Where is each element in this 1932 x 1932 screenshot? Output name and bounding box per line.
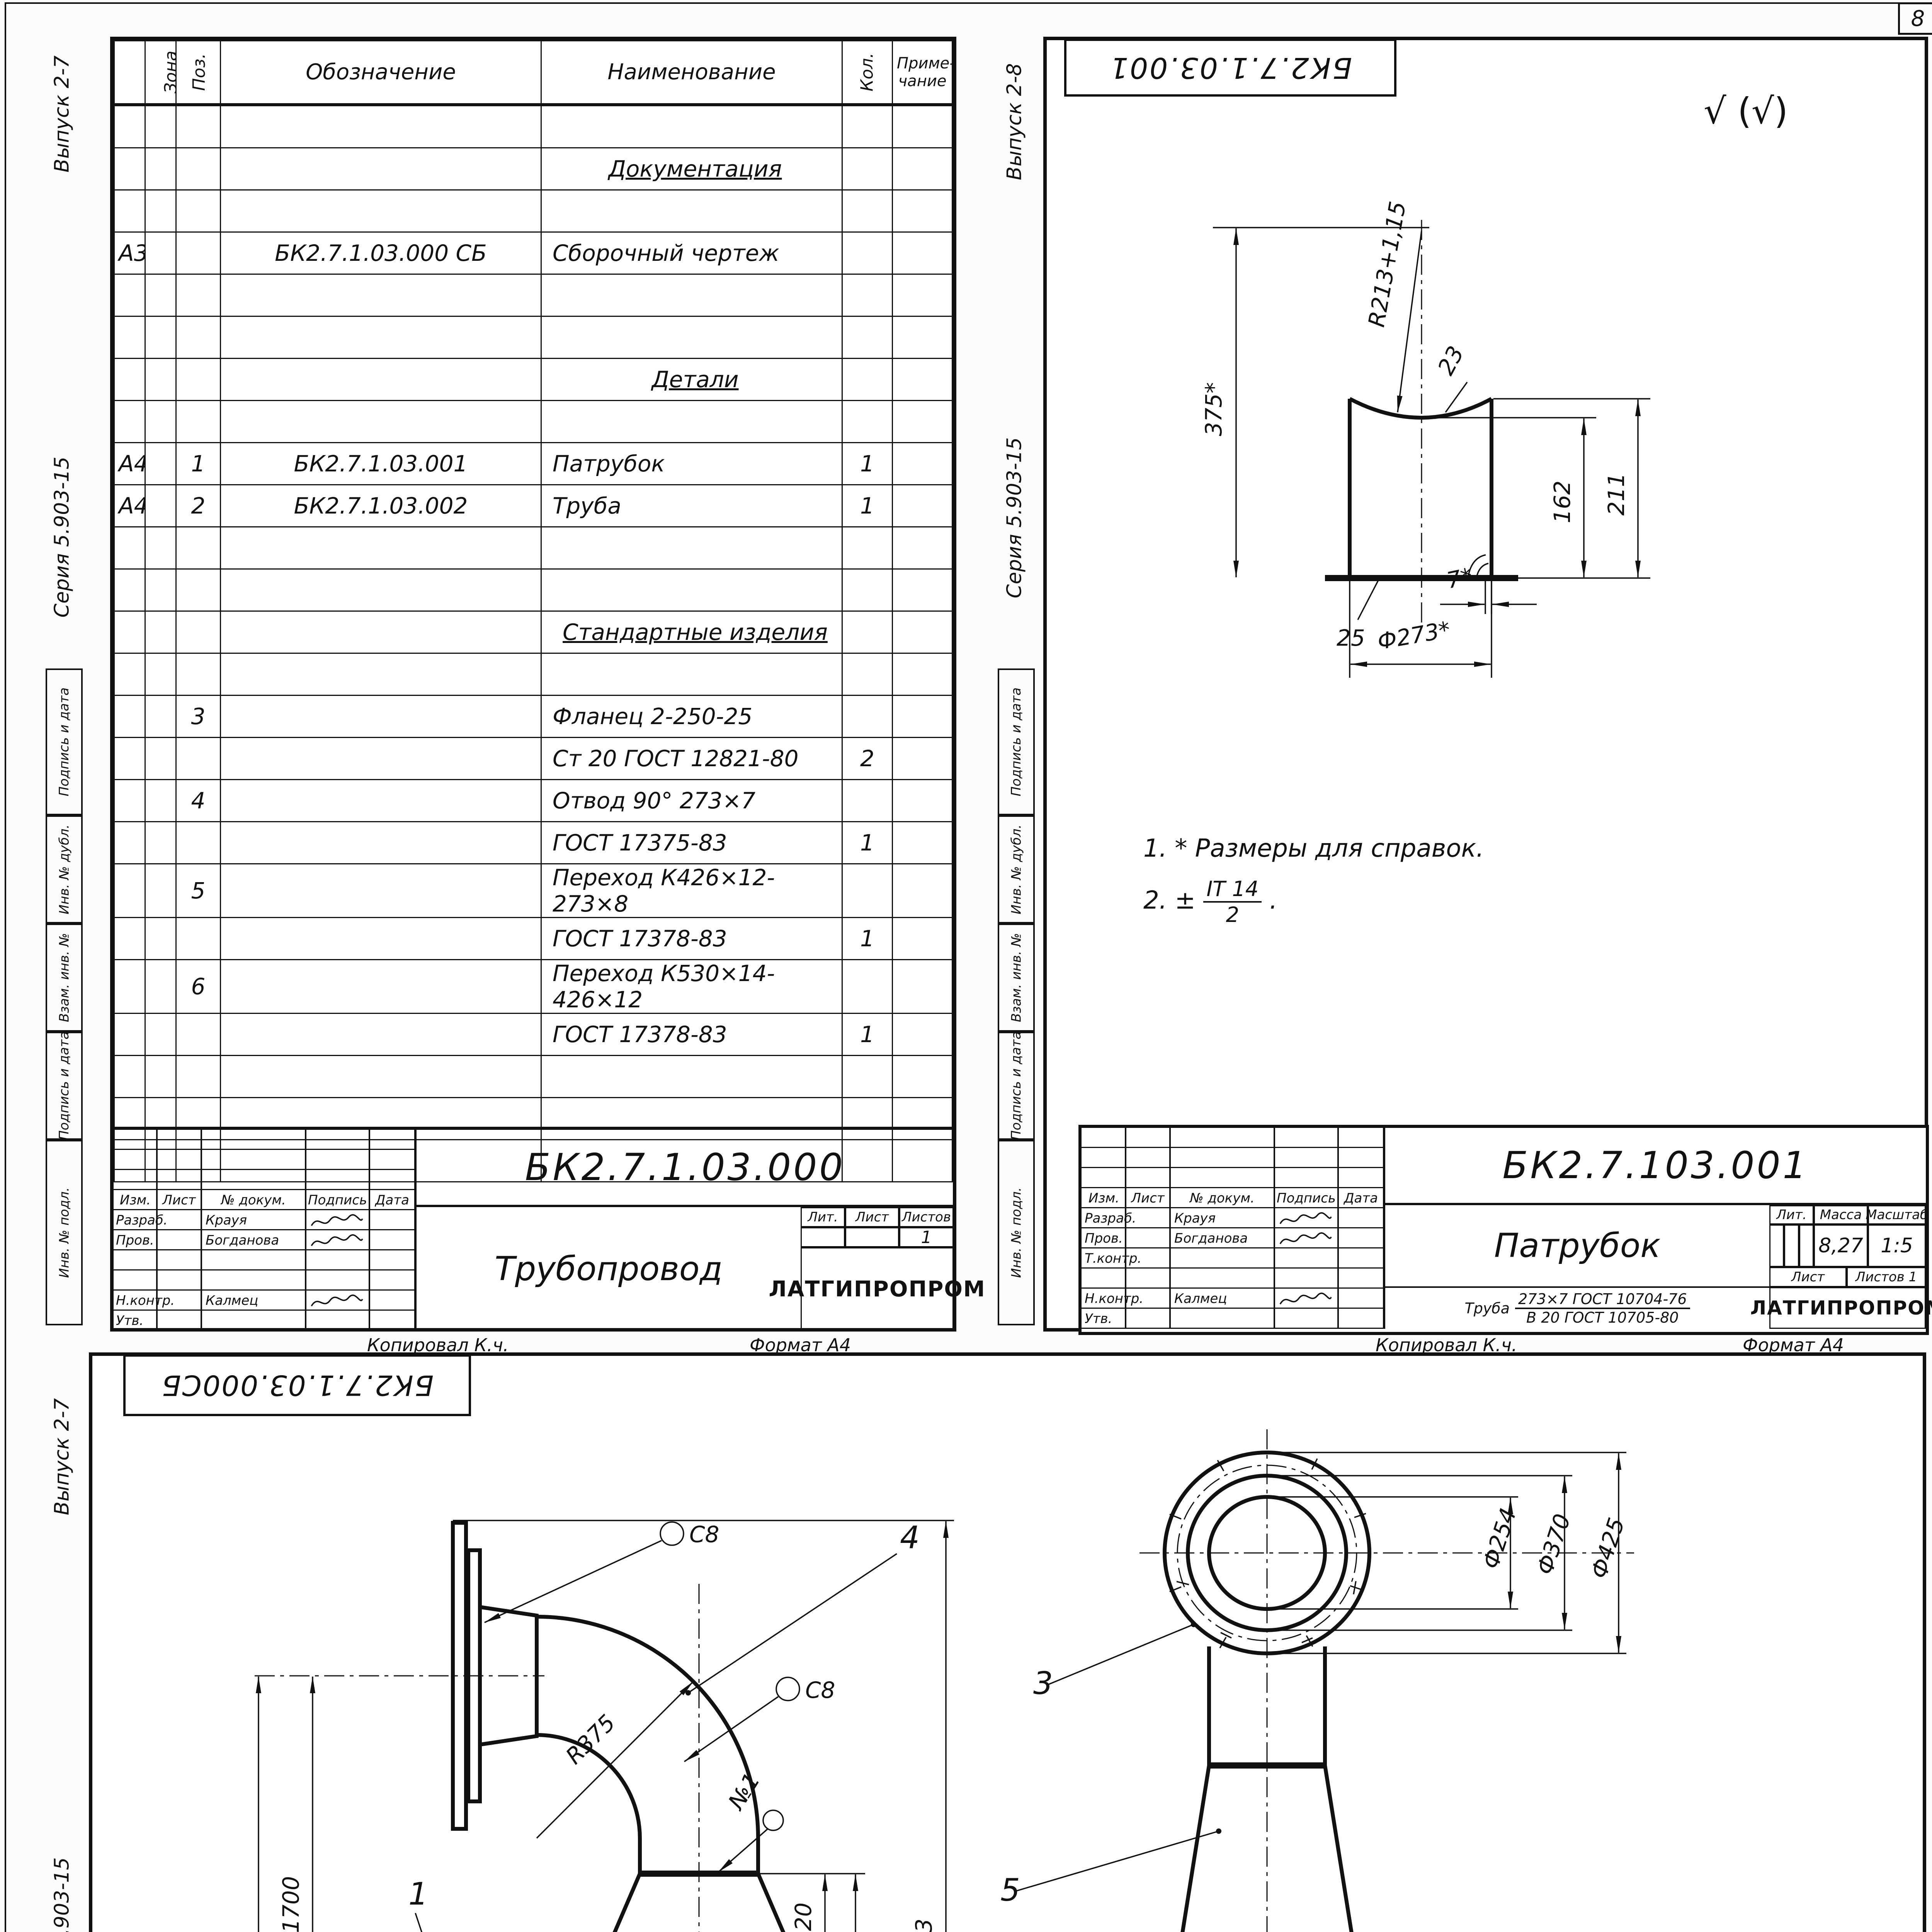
margin-field: Инв. № дубл. [46, 815, 83, 923]
part-title-block: Изм. Лист № докум. Подпись Дата Разраб. … [1078, 1125, 1929, 1335]
left-view-callouts: С8 С8 №1 №1 У18 1 4 [408, 1520, 920, 1932]
col-zona: Зона [145, 41, 176, 105]
margin-field: Подпись и дата [46, 1032, 83, 1140]
tb-list-label: Лист [845, 1207, 899, 1227]
margin-field: Подпись и дата [998, 1032, 1035, 1140]
spec-row: ГОСТ 17378-83 1 [114, 917, 952, 959]
spec-header-row: Формат Зона Поз. Обозначение Наименовани… [114, 41, 952, 105]
spec-row [114, 527, 952, 569]
tb-scale-value: 1:5 [1868, 1225, 1926, 1267]
svg-text:375*: 375* [1201, 382, 1227, 436]
svg-text:Ф273*: Ф273* [1376, 616, 1452, 655]
right-view-callouts: 3 5 2 №1 6 [998, 1622, 1221, 1932]
svg-text:С8: С8 [689, 1521, 719, 1548]
spec-row: 6 Переход К530×14-426×12 [114, 959, 952, 1013]
spec-row: Стандартные изделия [114, 611, 952, 653]
tb-doc-number: БК2.7.103.001 [1383, 1128, 1926, 1205]
roughness-mark: √ (√) [1704, 90, 1788, 132]
tb-company: ЛАТГИПРОПРОМ [1769, 1287, 1926, 1329]
signature [1277, 1210, 1335, 1228]
spec-row [114, 316, 952, 358]
spec-row: 5 Переход К426×12-273×8 [114, 864, 952, 917]
tb-lit-label: Лит. [1769, 1205, 1814, 1225]
svg-text:220: 220 [790, 1903, 816, 1932]
spec-row [114, 653, 952, 695]
tb-name: Патрубок [1383, 1205, 1769, 1286]
svg-text:1: 1 [408, 1876, 428, 1912]
tb-list-row: Лист [1769, 1267, 1847, 1287]
col-kol: Кол. [842, 41, 893, 105]
assembly-sheet: Выпуск 2-7 Серия 5.903-15 Подпись и дата… [35, 1349, 1932, 1932]
part-note-1: 1. * Размеры для справок. [1143, 834, 1484, 863]
svg-text:162: 162 [1549, 481, 1575, 524]
margin-field: Инв. № подл. [998, 1140, 1035, 1325]
spec-row: Ст 20 ГОСТ 12821-80 2 [114, 737, 952, 779]
right-view-centerlines [1139, 1429, 1634, 1932]
svg-text:7*: 7* [1444, 563, 1475, 594]
inverted-doc-stamp: БК2.7.1.03.001 [1064, 39, 1396, 97]
svg-text:Ф425: Ф425 [1586, 1515, 1630, 1582]
tb-listov-value: 1 [899, 1227, 954, 1247]
right-view-dimensions: Ф254 Ф370 Ф425 Ф30 12 отв. [1152, 1452, 1630, 1932]
tb-listov-row: Листов 1 [1847, 1267, 1926, 1287]
svg-text:2463: 2463 [911, 1918, 937, 1932]
spec-row: 3 Фланец 2-250-25 [114, 695, 952, 737]
dimensions: 375* R213+1,15 23 162 211 25 [1201, 199, 1650, 678]
svg-text:4: 4 [900, 1520, 920, 1556]
spec-sheet: Выпуск 2-7 Серия 5.903-15 Подпись и дата… [35, 12, 978, 1358]
spec-row [114, 569, 952, 611]
tb-lit-label: Лит. [801, 1207, 845, 1227]
assembly-drawing: 2250 1700 2463 1655 220 300 Ф426 [197, 1375, 1704, 1932]
margin-field: Подпись и дата [998, 668, 1035, 815]
tb-left-grid: Изм. Лист № докум. Подпись Дата Разраб. … [1082, 1128, 1383, 1329]
part-sheet: Выпуск 2-8 Серия 5.903-15 Подпись и дата… [989, 12, 1932, 1358]
patrubok-drawing: 375* R213+1,15 23 162 211 25 [1109, 162, 1881, 742]
left-view-centerlines [255, 1584, 699, 1932]
tb-name: Трубопровод [414, 1207, 801, 1331]
signature [1277, 1230, 1335, 1248]
tb-listov-label: Листов [899, 1207, 954, 1227]
margin-field: Инв. № дубл. [998, 815, 1035, 923]
asm-margin-seriya: Серия 5.903-15 [41, 1793, 83, 1932]
spec-margin-seriya: Серия 5.903-15 [41, 398, 83, 676]
spec-title-block: Изм. Лист № докум. Подпись Дата Разраб. … [113, 1127, 954, 1328]
spec-row: Детали [114, 358, 952, 400]
spec-row: ГОСТ 17375-83 1 [114, 821, 952, 864]
tb-company: ЛАТГИПРОПРОМ [801, 1247, 954, 1331]
signature [308, 1212, 366, 1230]
svg-text:1700: 1700 [278, 1876, 304, 1932]
svg-text:25: 25 [1337, 625, 1365, 651]
signature [308, 1292, 366, 1311]
spec-row: А4 2 БК2.7.1.03.002 Труба 1 [114, 485, 952, 527]
col-prim: Приме-чание [893, 41, 952, 105]
asm-frame: БК2.7.1.03.000СБ [89, 1352, 1926, 1932]
tb-doc-number: БК2.7.1.03.000 [414, 1130, 954, 1207]
part-margin-seriya: Серия 5.903-15 [993, 379, 1036, 657]
tb-masshtab-label: Масштаб [1868, 1205, 1926, 1225]
part-note-2: 2. ± IT 142 . [1143, 877, 1277, 927]
drawing-scan: 8 Выпуск 2-7 Серия 5.903-15 Подпись и да… [0, 0, 1932, 1932]
spec-row: 4 Отвод 90° 273×7 [114, 779, 952, 821]
margin-field: Взам. инв. № [46, 923, 83, 1032]
spec-row [114, 105, 952, 148]
svg-text:211: 211 [1603, 473, 1629, 516]
tb-material: Труба 273×7 ГОСТ 10704-76В 20 ГОСТ 10705… [1383, 1286, 1769, 1329]
spec-row: А3 БК2.7.1.03.000 СБ Сборочный чертеж [114, 232, 952, 274]
spec-row [114, 400, 952, 442]
tb-left-grid: Изм. Лист № докум. Подпись Дата Разраб. … [113, 1130, 414, 1331]
col-format: Формат [114, 41, 145, 105]
spec-row: А4 1 БК2.7.1.03.001 Патрубок 1 [114, 442, 952, 485]
spec-row [114, 1055, 952, 1097]
margin-field: Взам. инв. № [998, 923, 1035, 1032]
asm-margin-vypusk: Выпуск 2-7 [41, 1360, 83, 1553]
svg-text:R213+1,15: R213+1,15 [1363, 199, 1411, 329]
spec-frame: Формат Зона Поз. Обозначение Наименовани… [110, 37, 956, 1332]
svg-text:С8: С8 [805, 1677, 835, 1703]
col-oboz: Обозначение [221, 41, 541, 105]
spec-table: Формат Зона Поз. Обозначение Наименовани… [114, 40, 953, 1182]
left-view-dimensions: 2250 1700 2463 1655 220 300 Ф426 [224, 1520, 954, 1932]
spec-row [114, 274, 952, 316]
spec-row [114, 190, 952, 232]
margin-field: Инв. № подл. [46, 1140, 83, 1325]
col-poz: Поз. [176, 41, 221, 105]
svg-text:23: 23 [1432, 342, 1469, 379]
part-frame: БК2.7.1.03.001 √ (√) [1043, 37, 1928, 1332]
signature [1277, 1290, 1335, 1309]
spec-row: Документация [114, 148, 952, 190]
svg-text:Ф254: Ф254 [1478, 1505, 1522, 1572]
margin-field: Подпись и дата [46, 668, 83, 815]
part-margin-vypusk: Выпуск 2-8 [993, 35, 1036, 209]
spec-row: ГОСТ 17378-83 1 [114, 1013, 952, 1055]
col-naim: Наименование [541, 41, 842, 105]
svg-text:Ф370: Ф370 [1532, 1511, 1576, 1578]
svg-text:№1: №1 [723, 1768, 765, 1815]
tb-massa-value: 8,27 [1814, 1225, 1868, 1267]
tb-massa-label: Масса [1814, 1205, 1868, 1225]
signature [308, 1232, 366, 1250]
spec-margin-vypusk: Выпуск 2-7 [41, 27, 83, 201]
